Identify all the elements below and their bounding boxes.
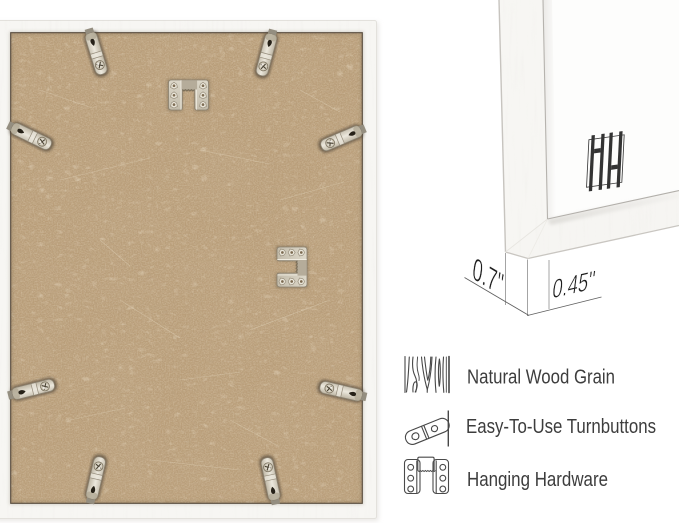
- svg-text:Natural Wood Grain: Natural Wood Grain: [467, 366, 615, 389]
- svg-text:Hanging Hardware: Hanging Hardware: [467, 468, 608, 491]
- svg-text:Easy-To-Use Turnbuttons: Easy-To-Use Turnbuttons: [466, 415, 656, 438]
